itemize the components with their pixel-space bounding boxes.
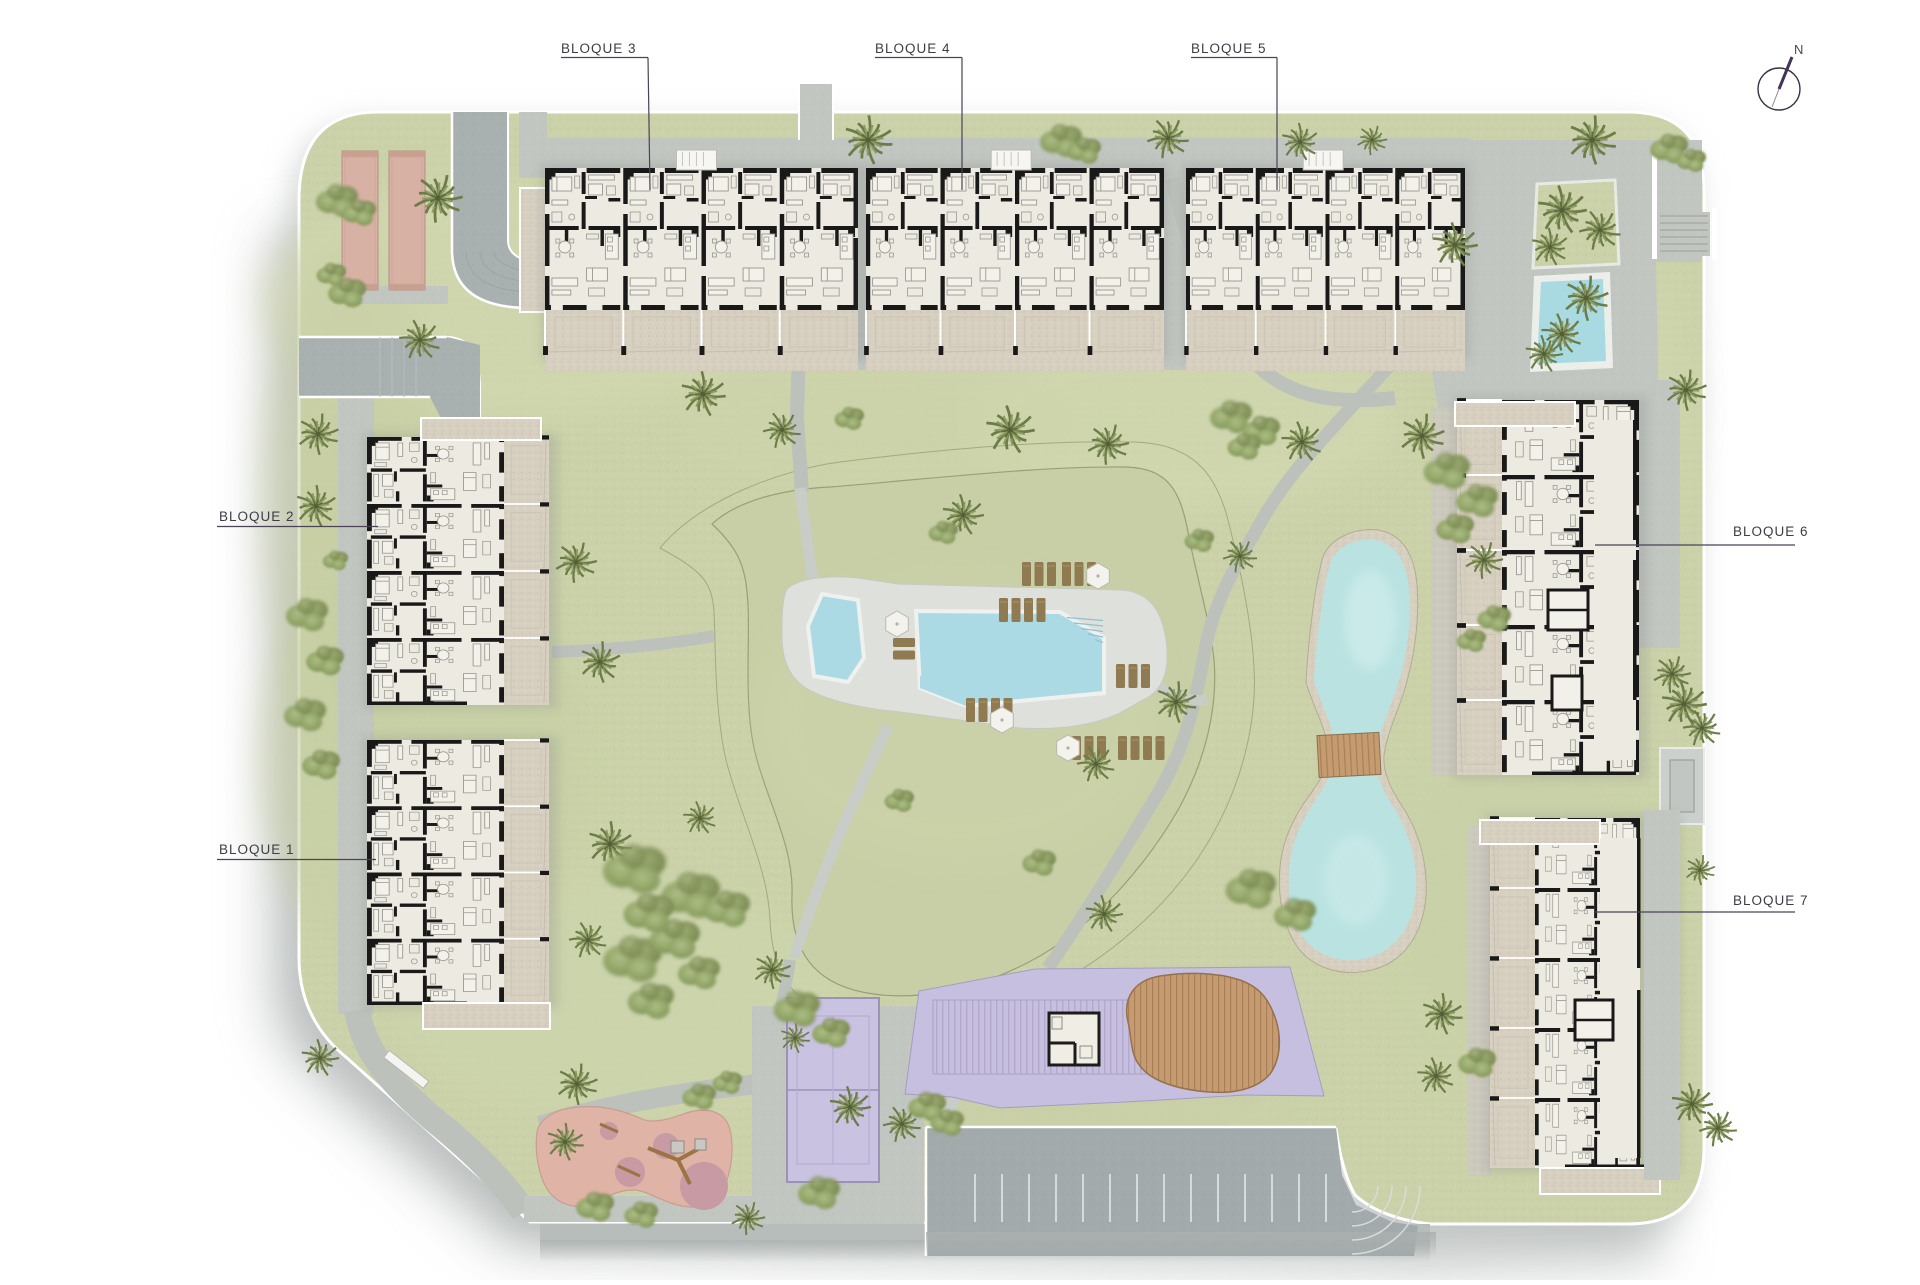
svg-text:BLOQUE 1: BLOQUE 1: [219, 842, 295, 857]
svg-text:BLOQUE 5: BLOQUE 5: [1191, 41, 1267, 56]
svg-text:BLOQUE 2: BLOQUE 2: [219, 509, 295, 524]
svg-text:BLOQUE 6: BLOQUE 6: [1733, 524, 1809, 539]
svg-text:N: N: [1794, 42, 1803, 57]
svg-text:BLOQUE 4: BLOQUE 4: [875, 41, 951, 56]
svg-text:BLOQUE 7: BLOQUE 7: [1733, 893, 1809, 908]
svg-text:BLOQUE 3: BLOQUE 3: [561, 41, 637, 56]
